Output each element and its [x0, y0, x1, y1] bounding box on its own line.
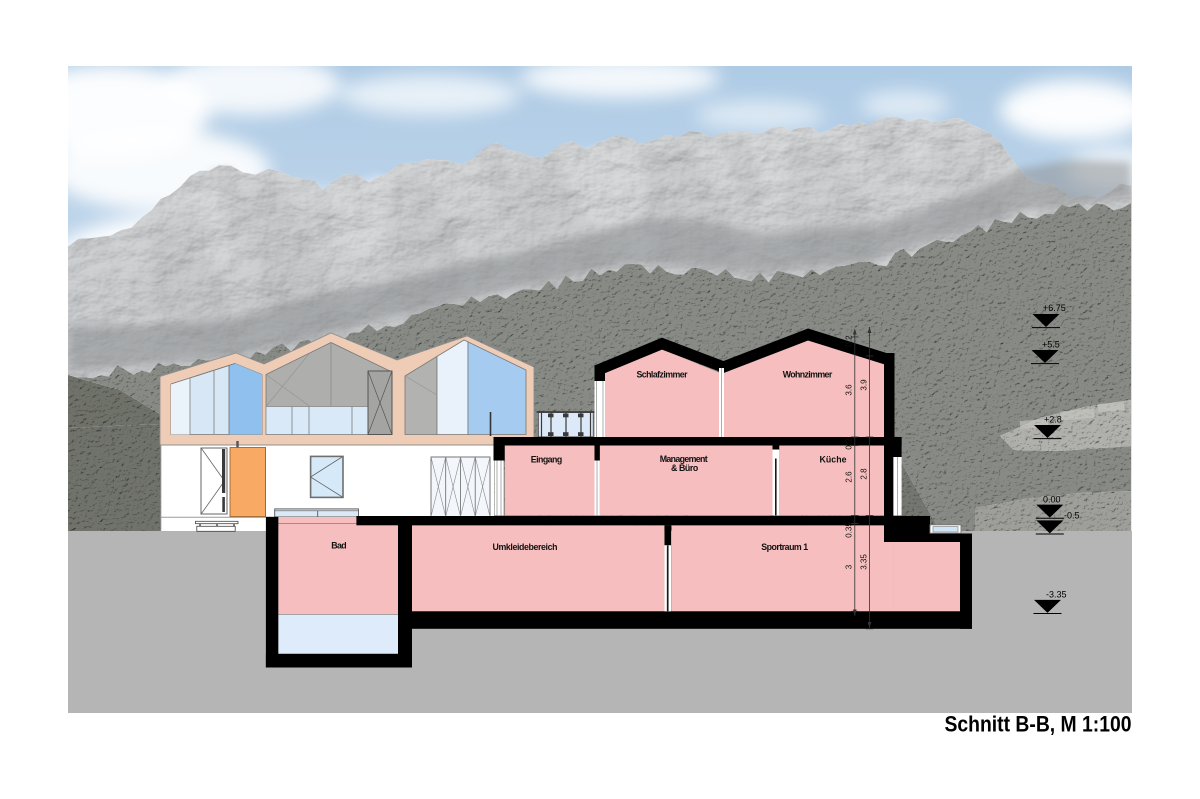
svg-text:+2.8: +2.8 [1044, 415, 1062, 425]
svg-text:Bad: Bad [331, 540, 346, 550]
svg-text:3: 3 [845, 564, 854, 569]
svg-text:Eingang: Eingang [531, 455, 563, 465]
svg-text:+6.75: +6.75 [1043, 303, 1066, 313]
svg-text:2.8: 2.8 [860, 468, 869, 480]
svg-text:& Büro: & Büro [671, 463, 699, 473]
svg-text:Schnitt B-B, M 1:100: Schnitt B-B, M 1:100 [945, 712, 1132, 737]
svg-text:3.9: 3.9 [860, 379, 869, 391]
svg-text:Wohnzimmer: Wohnzimmer [783, 370, 833, 380]
svg-text:Umkleidebereich: Umkleidebereich [493, 542, 558, 552]
svg-text:-0.5: -0.5 [1064, 511, 1080, 521]
svg-text:Küche: Küche [820, 455, 847, 465]
svg-text:Schlafzimmer: Schlafzimmer [637, 370, 689, 380]
svg-text:3.35: 3.35 [860, 554, 869, 570]
svg-text:3.6: 3.6 [845, 384, 854, 396]
svg-text:+5.5: +5.5 [1042, 340, 1060, 350]
svg-text:0.35: 0.35 [845, 522, 854, 538]
svg-text:0.2: 0.2 [845, 335, 854, 347]
svg-text:2.6: 2.6 [845, 471, 854, 483]
svg-text:Sportraum 1: Sportraum 1 [761, 542, 808, 552]
svg-text:-3.35: -3.35 [1046, 590, 1067, 600]
svg-text:0.2: 0.2 [845, 438, 854, 450]
svg-text:0.00: 0.00 [1043, 494, 1061, 504]
